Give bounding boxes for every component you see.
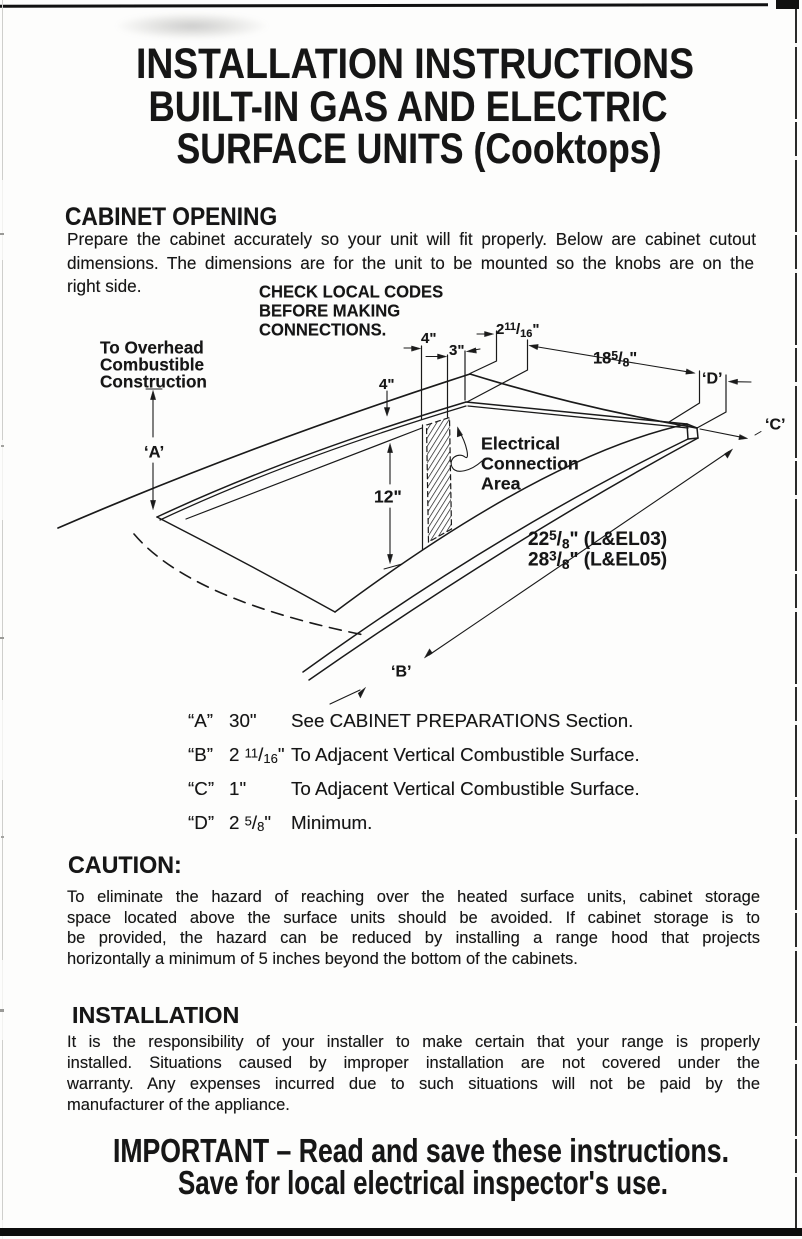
svg-text:‘A’: ‘A’: [144, 444, 164, 462]
svg-text:4": 4": [421, 330, 436, 347]
svg-text:4": 4": [379, 376, 394, 393]
svg-text:Construction: Construction: [100, 372, 207, 392]
svg-text:CONNECTIONS.: CONNECTIONS.: [259, 320, 386, 339]
svg-text:‘C’: ‘C’: [765, 417, 785, 434]
svg-text:‘D’: ‘D’: [702, 371, 722, 388]
svg-text:211/16": 211/16": [496, 321, 540, 340]
svg-text:283/8" (L&EL05): 283/8" (L&EL05): [528, 549, 667, 573]
svg-text:12": 12": [374, 487, 402, 507]
svg-text:‘B’: ‘B’: [391, 664, 411, 681]
svg-text:CHECK LOCAL CODES: CHECK LOCAL CODES: [259, 282, 443, 301]
svg-text:Electrical: Electrical: [481, 434, 560, 454]
svg-text:BEFORE MAKING: BEFORE MAKING: [259, 301, 400, 320]
svg-text:185/8": 185/8": [593, 349, 637, 370]
svg-text:Area: Area: [481, 474, 521, 494]
svg-text:Connection: Connection: [481, 454, 579, 474]
svg-text:3": 3": [449, 342, 464, 359]
